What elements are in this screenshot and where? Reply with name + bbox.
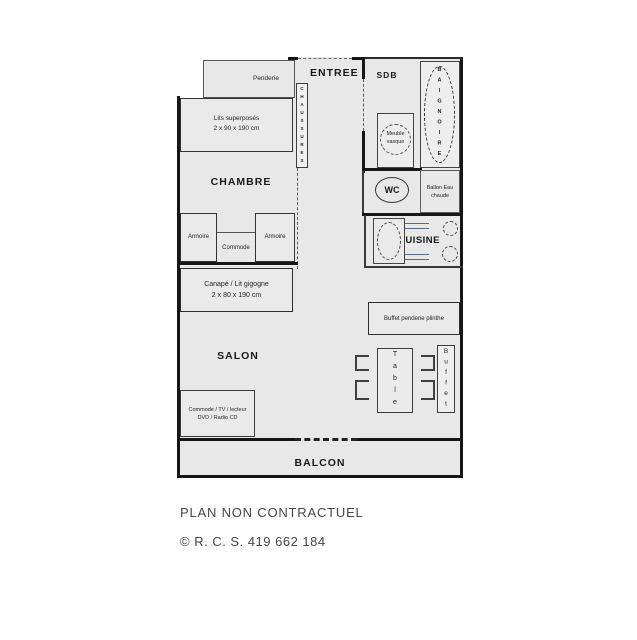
tv-dresser-line1: Commode / TV / lecteur xyxy=(181,406,254,414)
sideboard-label: Buffet penderie plinthe xyxy=(384,316,444,322)
tv-dresser: Commode / TV / lecteur DVD / Radio CD xyxy=(180,390,255,437)
buffet-cabinet-label: Buffet xyxy=(443,348,450,411)
room-label-sdb: SDB xyxy=(373,71,401,81)
chair-top-left xyxy=(355,355,369,371)
kitchen-shelf-lines-bottom xyxy=(405,254,429,260)
footer-disclaimer: PLAN NON CONTRACTUEL xyxy=(180,505,364,520)
sofa-bed-line2: 2 x 80 x 190 cm xyxy=(181,290,292,301)
bathtub-label: BAIGNOIRE xyxy=(437,67,443,162)
wall-kitchen-bottom xyxy=(364,266,463,268)
washbasin-line1: Meuble xyxy=(378,130,413,138)
wardrobe-right: Armoire xyxy=(255,213,295,262)
bathtub-oval: BAIGNOIRE xyxy=(424,66,455,163)
wall-kitchen-left xyxy=(364,215,366,267)
washbasin-line2: vasque xyxy=(378,138,413,146)
water-heater-label: Ballon Eau chaude xyxy=(421,184,459,200)
entry-door-threshold xyxy=(298,58,352,59)
burner-icon-bottom xyxy=(442,246,458,262)
wc-label: WC xyxy=(385,185,400,195)
penderie-label: Penderie xyxy=(253,75,279,82)
penderie-box: Penderie xyxy=(203,60,295,98)
shoe-cabinet-label: CHAUSSURES xyxy=(300,86,305,166)
corridor-dashed-line xyxy=(297,168,298,269)
sdb-door-dashed xyxy=(363,79,364,131)
wall-salon-balcon-left xyxy=(177,438,295,441)
dining-table-label: Table xyxy=(392,351,399,411)
tv-dresser-line2: DVD / Radio CD xyxy=(181,414,254,422)
wall-wc-left xyxy=(362,170,364,215)
chair-top-right xyxy=(421,355,435,371)
water-heater: Ballon Eau chaude xyxy=(420,170,460,213)
chair-bottom-right xyxy=(421,380,435,400)
wall-salon-balcon-right xyxy=(357,438,463,441)
floor-plan: ENTREE SDB CHAMBRE CUISINE SALON BALCON … xyxy=(177,57,463,478)
bunk-bed: Lits superposés 2 x 90 x 190 cm xyxy=(180,98,293,152)
wall-top-sdb xyxy=(362,57,463,59)
buffet-cabinet: Buffet xyxy=(437,345,455,413)
sofa-bed-line1: Canapé / Lit gigogne xyxy=(181,279,292,290)
sideboard: Buffet penderie plinthe xyxy=(368,302,460,335)
dresser: Commode xyxy=(217,232,255,262)
dresser-label: Commode xyxy=(217,245,255,252)
dining-table: Table xyxy=(377,348,413,413)
wall-bottom-balcony xyxy=(177,475,463,478)
water-heater-line1: Ballon Eau xyxy=(421,184,459,192)
tv-dresser-label: Commode / TV / lecteur DVD / Radio CD xyxy=(181,406,254,422)
washbasin-label: Meuble vasque xyxy=(378,130,413,146)
room-label-entree: ENTREE xyxy=(310,67,356,79)
room-label-salon: SALON xyxy=(205,350,271,362)
wc-symbol: WC xyxy=(375,177,409,203)
room-label-balcon: BALCON xyxy=(290,457,350,469)
wall-chambre-salon xyxy=(177,262,298,265)
balcony-sliding-door xyxy=(295,438,357,441)
room-label-chambre: CHAMBRE xyxy=(205,176,277,188)
footer-copyright: © R. C. S. 419 662 184 xyxy=(180,534,326,549)
burner-icon-top xyxy=(443,221,458,236)
sofa-bed-label: Canapé / Lit gigogne 2 x 80 x 190 cm xyxy=(181,279,292,301)
kitchen-sink-oval xyxy=(377,222,401,260)
wardrobe-left-label: Armoire xyxy=(181,234,216,241)
wardrobe-left: Armoire xyxy=(180,213,217,262)
sofa-bed: Canapé / Lit gigogne 2 x 80 x 190 cm xyxy=(180,268,293,312)
bunk-bed-line1: Lits superposés xyxy=(181,114,292,124)
washbasin-symbol: Meuble vasque xyxy=(377,113,414,168)
wardrobe-right-label: Armoire xyxy=(256,234,294,241)
shoe-cabinet: CHAUSSURES xyxy=(296,83,308,168)
wall-entry-sdb-bottom xyxy=(362,131,365,173)
wall-kitchen-top xyxy=(362,213,463,216)
bunk-bed-line2: 2 x 90 x 190 cm xyxy=(181,124,292,134)
wall-entry-sdb-top xyxy=(362,57,365,79)
chair-bottom-left xyxy=(355,380,369,400)
kitchen-shelf-lines-top xyxy=(405,223,429,229)
bunk-bed-label: Lits superposés 2 x 90 x 190 cm xyxy=(181,114,292,134)
wall-right xyxy=(460,57,463,478)
wall-sdb-wc-divider xyxy=(362,168,422,171)
bathtub-symbol: BAIGNOIRE xyxy=(420,61,460,168)
kitchen-sink-symbol xyxy=(373,218,405,264)
water-heater-line2: chaude xyxy=(421,192,459,200)
